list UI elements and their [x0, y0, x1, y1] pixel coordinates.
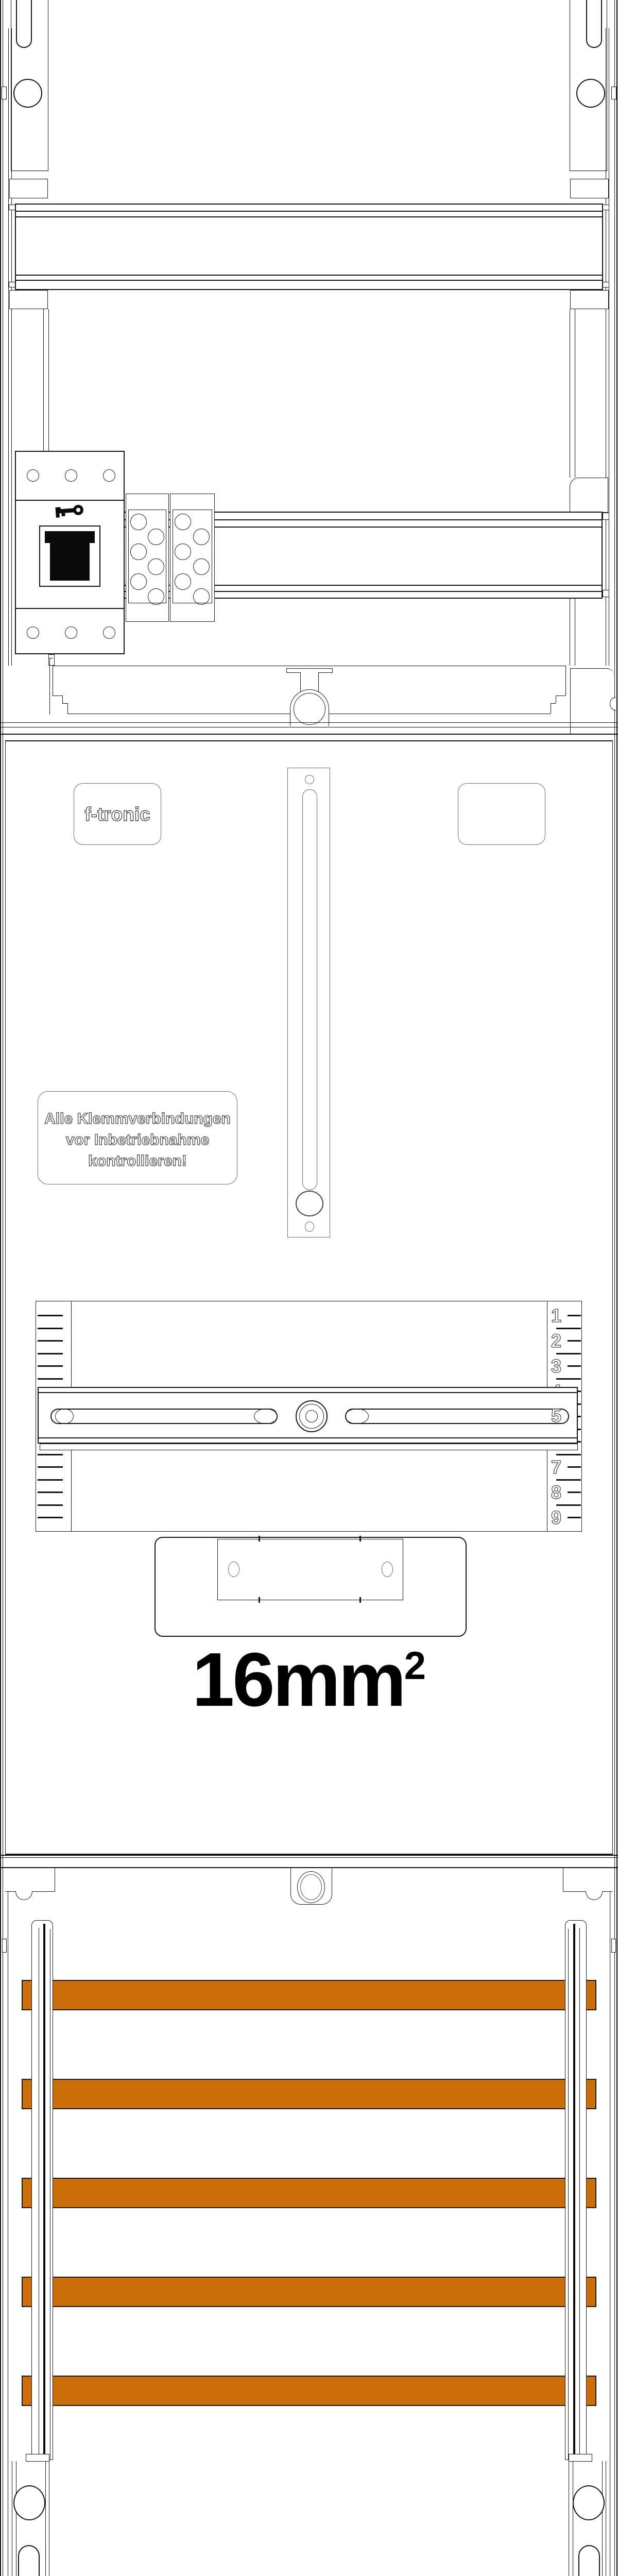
top-right-bracket	[570, 0, 607, 171]
top-left-bracket-step	[11, 171, 48, 171]
gauge-tick-right-short	[568, 1365, 581, 1367]
din-rail-2-tab-lower	[603, 590, 609, 597]
gauge-tick-right-short	[568, 1315, 581, 1316]
right-wall-outer-line	[616, 0, 617, 2576]
right-lines-below-rail2-a	[570, 599, 570, 666]
bottom-right-wall-clip	[611, 1939, 616, 1953]
warning-label-text: Alle Klemmverbindungen vor Inbetriebnahm…	[38, 1091, 237, 1184]
svg-text:f-tronic: f-tronic	[84, 804, 150, 825]
gauge-number: 7	[547, 1455, 568, 1478]
blank-plate	[458, 783, 545, 845]
right-foot-line-a	[570, 309, 570, 478]
terminal-contact	[130, 514, 147, 530]
gauge-tick-left	[38, 1504, 63, 1506]
gauge-tick-right-short	[568, 1517, 581, 1518]
terminal-contact	[148, 529, 164, 545]
terminal-contact	[193, 588, 210, 605]
conductor-size-value: 16mm2	[192, 1636, 426, 1724]
slide-slot-left-end	[254, 1409, 278, 1424]
gauge-tick-left	[38, 1492, 63, 1493]
bottom-left-ledge-bump	[15, 1891, 32, 1900]
clamp-hole	[228, 1562, 239, 1577]
locking-device	[15, 451, 125, 654]
gauge-number: 8	[547, 1481, 568, 1503]
gauge-number: 1	[547, 1304, 568, 1327]
bottom-left-hole	[13, 2485, 45, 2520]
plug-silhouette-icon-body	[50, 543, 90, 581]
slot-end-hole	[305, 1222, 314, 1232]
slide-knob-inner	[305, 1410, 318, 1422]
svg-text:vor Inbetriebnahme: vor Inbetriebnahme	[66, 1131, 209, 1148]
din-rail-top-tab-right-lower	[602, 282, 609, 287]
center-slot-bar	[287, 768, 330, 1238]
screw-hole	[27, 626, 39, 639]
mounting-hole	[13, 79, 42, 108]
rail-foot-right	[569, 2454, 592, 2462]
top-left-bracket-foot	[9, 179, 48, 198]
bottom-right-hole	[573, 2485, 605, 2520]
right-foot-block	[570, 290, 609, 309]
gauge-tick-left	[38, 1454, 63, 1455]
conductor-size-superscript: 2	[404, 1644, 426, 1688]
rail-foot-left	[26, 2454, 49, 2462]
left-foot-line-a	[43, 309, 44, 451]
right-wall-line-2	[614, 0, 615, 2576]
svg-text:Alle Klemmverbindungen: Alle Klemmverbindungen	[44, 1110, 231, 1127]
divider-knob-oval-inner	[300, 1874, 322, 1900]
mounting-hole	[576, 79, 605, 108]
right-lines-below-rail2-b	[575, 599, 575, 666]
screw-hole	[27, 469, 39, 482]
busbar	[22, 2079, 596, 2109]
screw-hole	[103, 469, 115, 482]
pilot-hole	[305, 775, 314, 784]
svg-text:7: 7	[551, 1456, 561, 1478]
din-rail-top	[15, 204, 603, 290]
din-rail-top-tab-right-upper	[602, 205, 609, 210]
gauge-slide-bar[interactable]	[38, 1387, 578, 1444]
right-wall-clip	[611, 87, 616, 99]
terminal-block-1	[126, 494, 169, 622]
slide-slot-left	[50, 1409, 278, 1424]
clamp-inner-plate	[217, 1539, 403, 1600]
key-icon	[54, 501, 85, 520]
gauge-tick-left	[38, 1315, 63, 1316]
terminal-contact	[193, 558, 210, 575]
clamp-hole	[382, 1562, 393, 1577]
screw-hole	[65, 626, 77, 639]
gauge-slide-bar-lip	[40, 1444, 578, 1450]
plug-socket-frame	[39, 526, 100, 587]
terminal-contact	[130, 573, 147, 590]
terminal-contact	[175, 544, 191, 560]
gauge-tick-left	[38, 1517, 63, 1518]
right-rail2-foot	[570, 478, 608, 513]
svg-text:9: 9	[551, 1507, 561, 1528]
terminal-contact	[130, 544, 147, 560]
brand-logo: f-tronic	[74, 783, 161, 845]
gauge-number-5-indicator: 5	[547, 1405, 568, 1426]
bottom-left-slot	[18, 2545, 40, 2576]
gauge-tick-left	[38, 1365, 63, 1367]
left-wall-line-3	[8, 28, 9, 666]
tray-right-block	[570, 668, 614, 734]
bottom-right-ledge	[563, 1868, 613, 1892]
busbar-rail-left	[31, 1920, 53, 2460]
gauge-tick-left	[38, 1466, 63, 1468]
gauge-tick-left	[38, 1328, 63, 1329]
svg-text:2: 2	[551, 1330, 561, 1351]
terminal-contact	[175, 514, 191, 530]
slide-slot-left-cap	[55, 1409, 74, 1424]
slide-slot-right	[345, 1409, 569, 1424]
svg-text:3: 3	[551, 1355, 561, 1377]
busbar	[22, 2277, 596, 2307]
busbar	[22, 1980, 596, 2010]
right-wall-line-3	[609, 28, 609, 666]
gauge-tick-right-short	[568, 1340, 581, 1342]
busbar	[22, 2178, 596, 2208]
top-left-bracket	[11, 0, 48, 171]
terminal-contact	[148, 558, 164, 575]
left-foot-block	[9, 290, 48, 309]
hanger-slot	[16, 0, 32, 48]
din-rail-2-tab-upper	[603, 513, 609, 520]
gauge-number: 2	[547, 1329, 568, 1352]
top-right-bracket-step	[570, 171, 607, 171]
conductor-size-text: 16mm2	[0, 1647, 618, 1714]
gauge-tick-left	[38, 1378, 63, 1380]
t-handle-knob	[294, 693, 325, 725]
busbar-rail-right	[565, 1920, 587, 2460]
meter-fixing-slot	[302, 789, 317, 1190]
svg-text:1: 1	[551, 1305, 561, 1326]
gauge-number: 3	[547, 1354, 568, 1377]
busbar	[22, 2376, 596, 2406]
left-wall-line-2	[3, 0, 3, 2576]
gauge-number: 9	[547, 1506, 568, 1529]
screw-hole	[65, 469, 77, 482]
left-wall-outer-line	[0, 0, 1, 2576]
slide-slot-right-cap	[345, 1409, 369, 1424]
plug-silhouette-icon	[45, 531, 95, 543]
gauge-tick-right-short	[568, 1466, 581, 1468]
terminal-contact	[175, 573, 191, 590]
left-wall-clip	[2, 87, 7, 99]
terminal-block-2	[170, 494, 215, 622]
screw-hole	[103, 626, 115, 639]
locking-device-bottom-band	[16, 608, 124, 655]
terminal-contact	[148, 588, 164, 605]
svg-text:8: 8	[551, 1482, 561, 1503]
bottom-right-slot	[578, 2545, 600, 2576]
gauge-tick-left	[38, 1479, 63, 1481]
right-foot-line-b	[575, 309, 575, 478]
svg-text:kontrollieren!: kontrollieren!	[88, 1153, 187, 1170]
cabinet-drawing: f-tronic Alle Klemmverbindungen vor Inbe…	[0, 0, 618, 2576]
gauge-tick-right-short	[568, 1492, 581, 1493]
terminal-contact	[193, 529, 210, 545]
gauge-tick-left	[38, 1340, 63, 1342]
svg-text:5: 5	[551, 1405, 561, 1426]
slot-bulb	[296, 1191, 323, 1216]
bottom-right-ledge-bump	[586, 1891, 603, 1900]
bottom-left-wall-clip	[2, 1939, 7, 1953]
top-right-bracket-foot	[570, 179, 609, 198]
locking-device-top-band	[16, 452, 124, 501]
left-foot-line-b	[48, 309, 49, 451]
bottom-left-ledge	[5, 1868, 55, 1892]
hanger-slot	[586, 0, 602, 48]
tray-top-edge	[53, 666, 565, 666]
gauge-tick-left	[38, 1353, 63, 1354]
